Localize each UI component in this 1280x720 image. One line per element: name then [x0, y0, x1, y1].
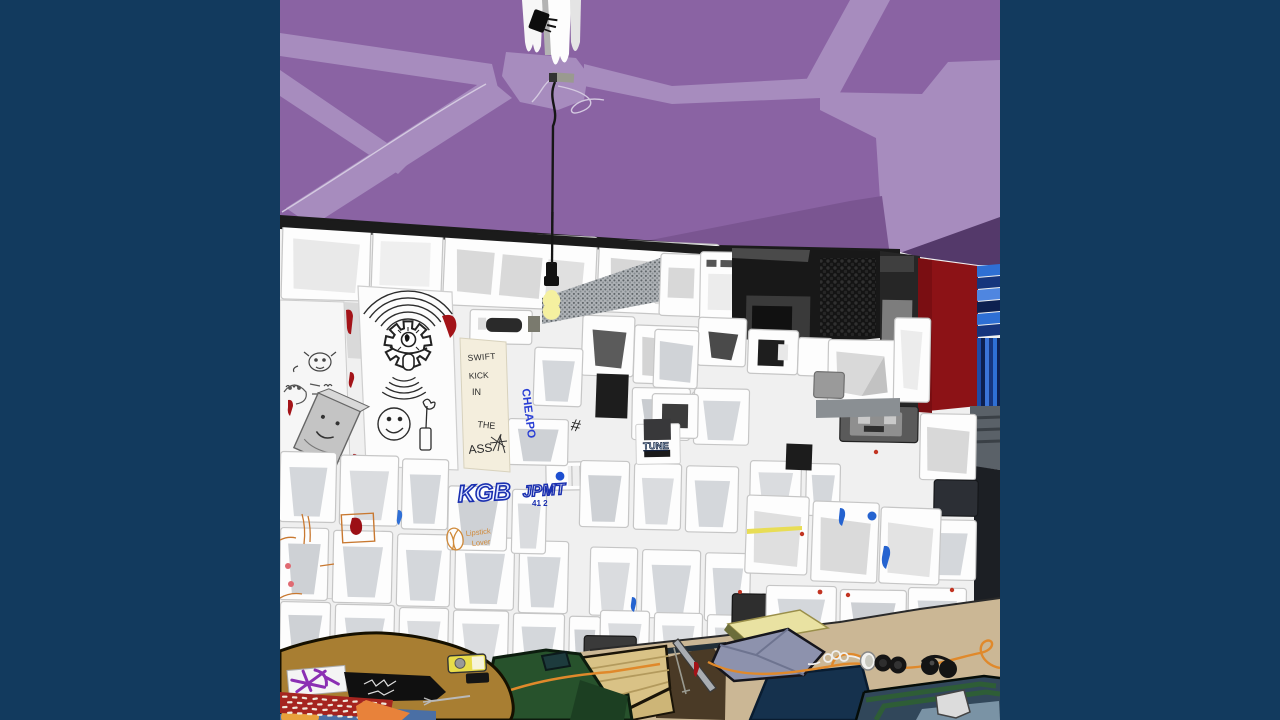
svg-text:41 2: 41 2 [532, 499, 548, 508]
svg-text:SWIFT: SWIFT [467, 351, 496, 363]
svg-text:KICK: KICK [469, 370, 490, 381]
svg-text:ASS: ASS [468, 440, 493, 456]
svg-text:JPMT: JPMT [522, 481, 567, 501]
svg-text:THE: THE [477, 419, 496, 431]
svg-text:IN: IN [472, 387, 481, 397]
svg-text:KGB: KGB [457, 478, 512, 508]
